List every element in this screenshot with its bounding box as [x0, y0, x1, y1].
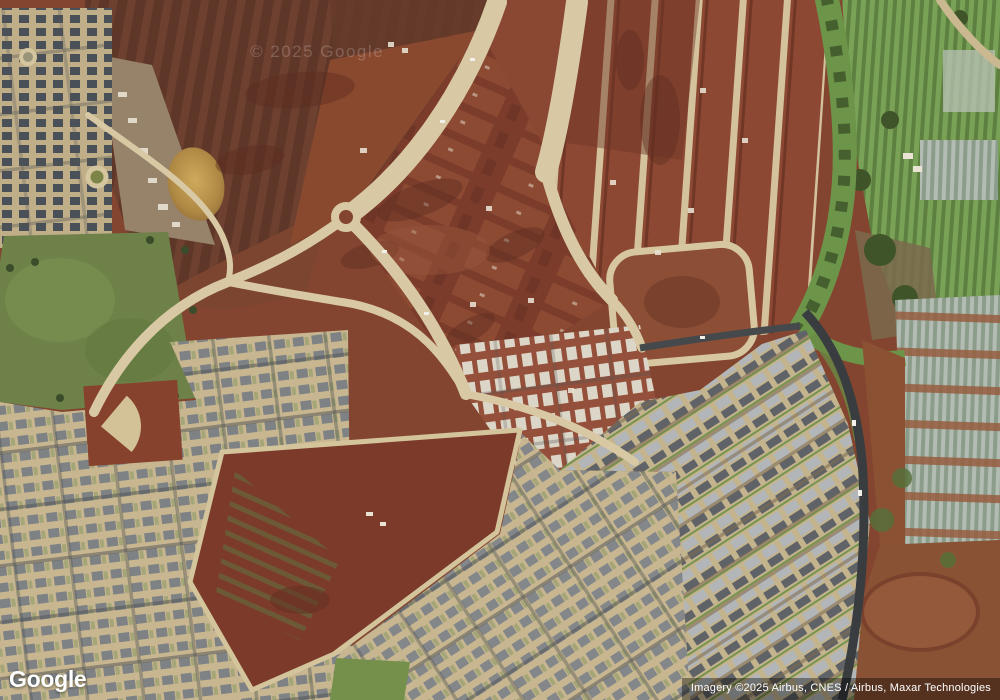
shade-cloth-plot [920, 140, 998, 200]
residential-street-grid-west [0, 8, 112, 248]
dirt-mound [862, 574, 978, 650]
roundabout-small-south [88, 168, 106, 186]
crop-plot-lanes [895, 295, 1000, 545]
satellite-imagery [0, 0, 1000, 700]
parcel-dark-spot [270, 586, 330, 614]
loop-block-mound [644, 276, 720, 328]
imagery-attribution: Imagery ©2025 Airbus, CNES / Airbus, Max… [682, 678, 1000, 700]
google-logo[interactable]: Google [9, 666, 86, 693]
satellite-map-viewport[interactable]: © 2025 Google Google Imagery ©2025 Airbu… [0, 0, 1000, 700]
park-green-strip [330, 658, 410, 700]
roundabout-main [335, 206, 357, 228]
roundabout-small-north [21, 50, 35, 64]
